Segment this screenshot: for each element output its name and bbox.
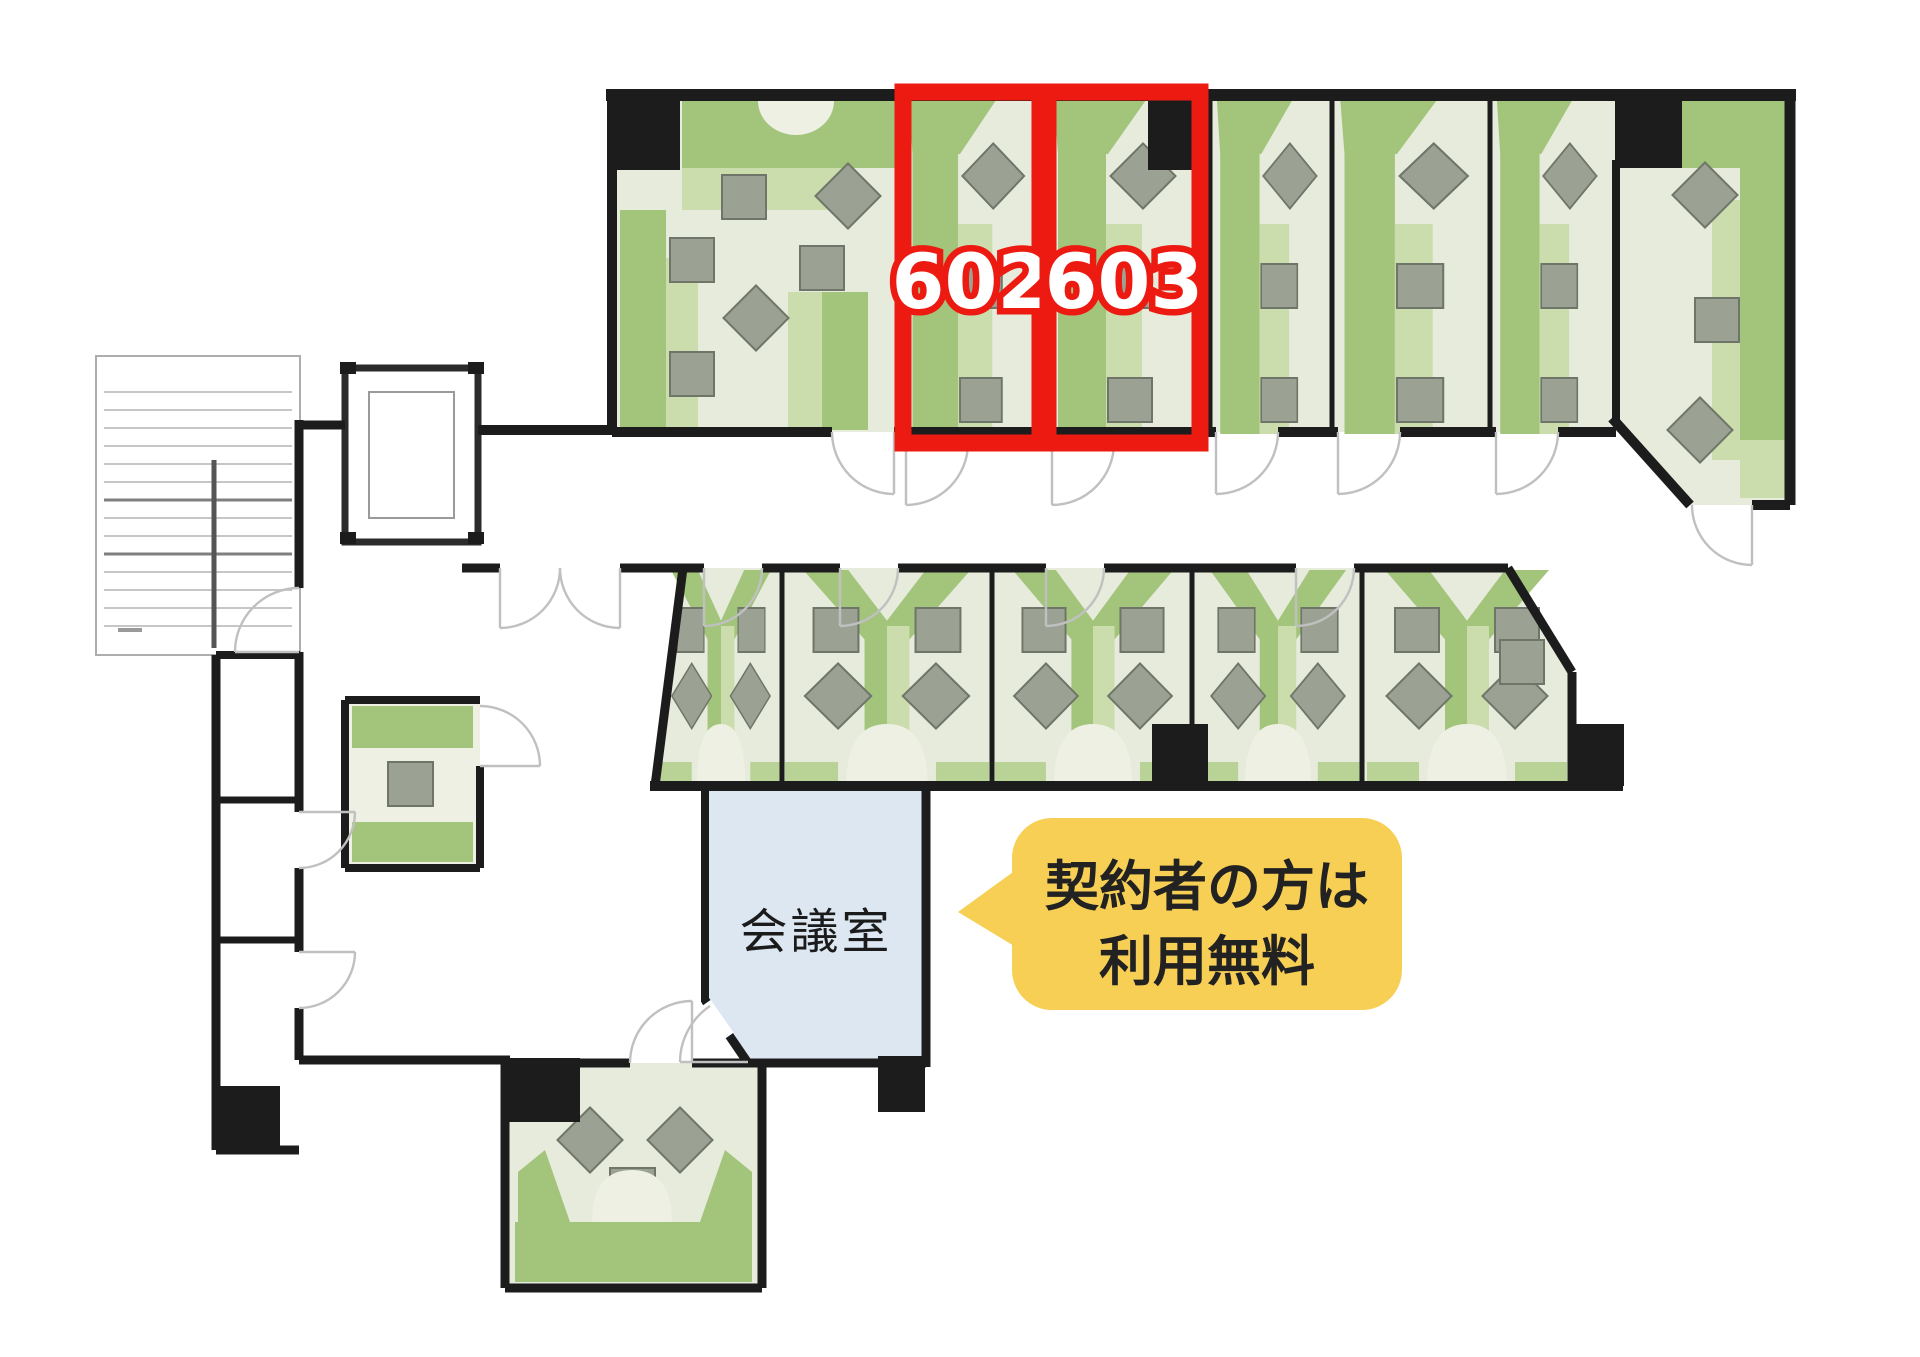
stairwell xyxy=(96,356,300,655)
floor-plan-canvas: 602 603 会議室 契約者の方は 利用無料 xyxy=(0,0,1920,1357)
pillar xyxy=(508,1058,580,1122)
floor-plan-page: 602 603 会議室 契約者の方は 利用無料 xyxy=(0,0,1920,1357)
elevator-shaft xyxy=(345,368,478,542)
illegible-mark xyxy=(118,628,142,632)
meeting-room-label: 会議室 xyxy=(739,904,892,960)
pillar xyxy=(1615,95,1682,168)
room-602-label: 602 xyxy=(892,237,1051,326)
room-603-label: 603 xyxy=(1045,237,1204,326)
pillar xyxy=(1568,724,1624,786)
pillar xyxy=(216,1086,280,1150)
extra-chair xyxy=(1500,640,1544,684)
elevator xyxy=(340,362,484,544)
pillar xyxy=(612,95,680,170)
callout-bubble: 契約者の方は 利用無料 xyxy=(958,818,1402,1010)
pillar xyxy=(1152,724,1208,786)
callout-line-2: 利用無料 xyxy=(1099,930,1315,993)
callout-line-1: 契約者の方は xyxy=(1045,855,1369,918)
pillar xyxy=(878,1056,925,1112)
